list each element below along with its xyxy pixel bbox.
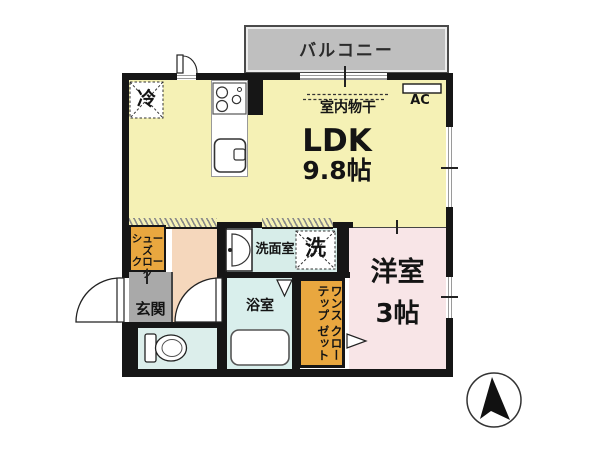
fixtures-layer	[0, 0, 600, 450]
entry-door-leaf	[117, 278, 124, 322]
hallway-door-arc	[175, 278, 219, 322]
hallway-door-leaf	[216, 278, 222, 322]
ldk-label: LDK	[278, 124, 396, 158]
stove-icon	[213, 83, 246, 114]
kitchen-sink-icon	[215, 139, 246, 172]
washer-label: 洗	[296, 237, 335, 260]
toilet-icon	[145, 334, 187, 362]
compass-icon	[467, 373, 521, 427]
ldk-top-door-arc	[183, 56, 197, 73]
western-room-size-label: 3帖	[349, 300, 446, 329]
ldk-top-door-leaf	[177, 55, 183, 73]
western-room-label: 洋室	[349, 258, 446, 288]
fridge-label: 冷	[130, 89, 163, 110]
indoor-drying-mark	[303, 95, 389, 100]
bathroom-label: 浴室	[230, 299, 290, 314]
ldk-size-label: 9.8帖	[278, 157, 396, 185]
washroom-label: 洗面室	[252, 243, 298, 257]
ac-label: AC	[400, 94, 440, 108]
indoor-drying-label: 室内物干	[306, 101, 390, 116]
bathroom-door-notch	[277, 280, 292, 296]
washbasin-icon	[226, 229, 252, 271]
floor-plan: バルコニー シューズ クロー	[0, 0, 600, 450]
entrance-label: 玄関	[128, 301, 173, 318]
ac-unit-box	[403, 84, 441, 93]
entry-door-arc	[76, 278, 120, 322]
closet-arrow	[347, 334, 366, 348]
bathtub-icon	[231, 330, 289, 365]
